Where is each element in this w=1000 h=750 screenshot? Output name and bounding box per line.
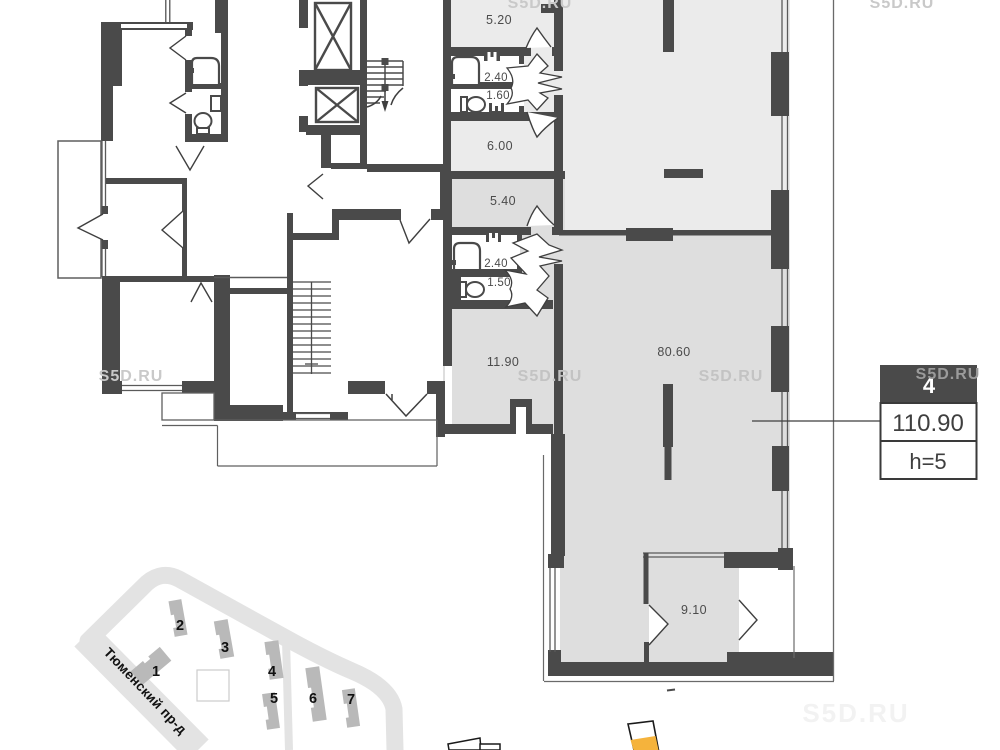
- svg-text:6.00: 6.00: [487, 139, 513, 153]
- svg-text:2.40: 2.40: [484, 72, 508, 84]
- svg-text:1.60: 1.60: [486, 90, 510, 102]
- svg-text:S5D.RU: S5D.RU: [916, 366, 981, 383]
- svg-text:4: 4: [268, 664, 276, 680]
- svg-text:Тюменский пр-д: Тюменский пр-д: [101, 645, 190, 738]
- svg-text:7: 7: [347, 692, 355, 708]
- svg-text:S5D.RU: S5D.RU: [870, 0, 935, 12]
- svg-text:5: 5: [270, 691, 278, 707]
- svg-text:S5D.RU: S5D.RU: [699, 368, 764, 385]
- svg-text:5.20: 5.20: [486, 13, 512, 27]
- svg-text:2: 2: [176, 618, 184, 634]
- svg-text:S5D.RU: S5D.RU: [99, 368, 164, 385]
- svg-text:11.90: 11.90: [487, 355, 519, 369]
- svg-text:2.40: 2.40: [484, 258, 508, 270]
- svg-text:80.60: 80.60: [657, 345, 690, 359]
- svg-text:9.10: 9.10: [681, 603, 707, 617]
- svg-text:S5D.RU: S5D.RU: [508, 0, 573, 12]
- svg-text:S5D.RU: S5D.RU: [802, 698, 909, 728]
- svg-text:6: 6: [309, 691, 317, 707]
- svg-text:110.90: 110.90: [892, 410, 964, 437]
- svg-text:3: 3: [221, 640, 229, 656]
- svg-text:5.40: 5.40: [490, 194, 516, 208]
- svg-text:1: 1: [152, 664, 160, 680]
- svg-text:1.50: 1.50: [487, 277, 511, 289]
- svg-text:h=5: h=5: [909, 449, 946, 474]
- svg-text:S5D.RU: S5D.RU: [518, 368, 583, 385]
